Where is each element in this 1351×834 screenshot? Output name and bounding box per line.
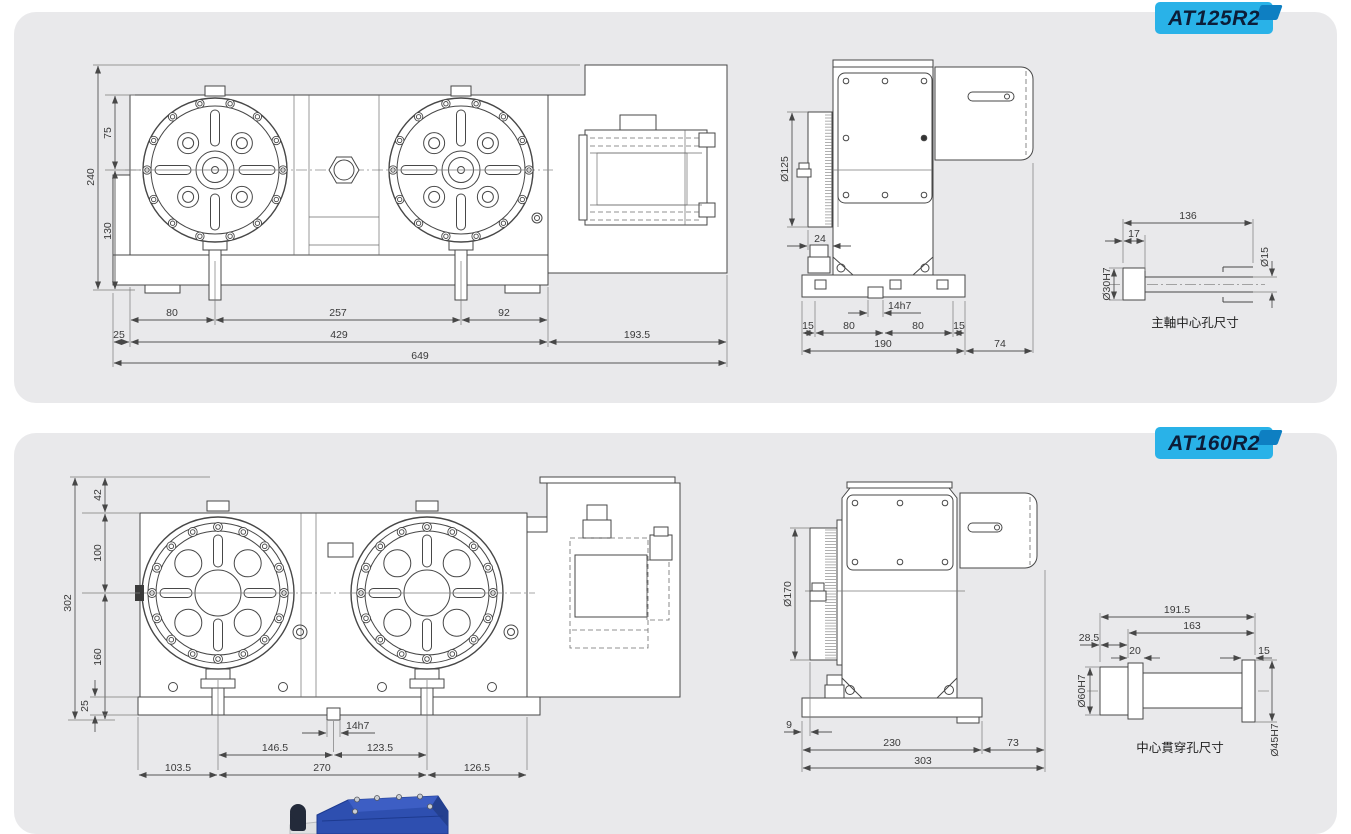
svg-text:42: 42 xyxy=(92,489,104,501)
detail-caption: 中心貫穿孔尺寸 xyxy=(1136,740,1224,755)
end-flange xyxy=(1242,660,1255,722)
svg-text:25: 25 xyxy=(79,700,91,712)
svg-text:429: 429 xyxy=(330,329,348,341)
svg-text:126.5: 126.5 xyxy=(464,762,490,774)
svg-text:73: 73 xyxy=(1007,737,1019,749)
servo-motor xyxy=(579,115,715,225)
shaft-head xyxy=(1123,268,1145,300)
svg-text:20: 20 xyxy=(1129,645,1141,657)
shaft-body xyxy=(1143,673,1242,708)
svg-text:Ø60H7: Ø60H7 xyxy=(1076,674,1088,707)
at160r2-front-view-drawing: 302 42 100 160 25 14h7 146.5 123.5 103.5… xyxy=(60,465,750,800)
at160r2-side-view-drawing: Ø170 9 230 73 303 xyxy=(775,470,1065,800)
dim-height-bottom: 130 xyxy=(102,222,114,240)
svg-text:15: 15 xyxy=(953,320,965,332)
svg-text:Ø15: Ø15 xyxy=(1259,247,1271,267)
svg-text:9: 9 xyxy=(786,719,792,731)
detail-caption: 主軸中心孔尺寸 xyxy=(1151,315,1239,330)
svg-text:103.5: 103.5 xyxy=(165,762,191,774)
svg-text:24: 24 xyxy=(814,233,826,245)
at125r2-bore-detail-drawing: 136 17 Ø30H7 Ø15 主軸中心孔尺寸 xyxy=(1095,205,1305,335)
product-panel-at160r2: AT160R2 xyxy=(14,433,1337,834)
svg-text:92: 92 xyxy=(498,307,510,319)
svg-text:190: 190 xyxy=(874,338,892,350)
svg-text:25: 25 xyxy=(113,329,125,341)
svg-text:123.5: 123.5 xyxy=(367,742,393,754)
svg-text:270: 270 xyxy=(313,762,331,774)
svg-text:80: 80 xyxy=(843,320,855,332)
svg-text:193.5: 193.5 xyxy=(624,329,650,341)
svg-text:136: 136 xyxy=(1179,210,1197,222)
svg-text:302: 302 xyxy=(62,594,74,612)
svg-text:74: 74 xyxy=(994,338,1006,350)
side-motor xyxy=(960,493,1037,568)
svg-text:28.5: 28.5 xyxy=(1079,632,1100,644)
at160r2-bore-detail-drawing: 191.5 163 28.5 20 15 Ø60H7 Ø45H7 中心貫穿孔尺寸 xyxy=(1065,600,1350,770)
catalog-page: { "colors": { "panel_bg": "#e9e9eb", "ba… xyxy=(0,0,1351,834)
base-rail xyxy=(113,255,548,285)
svg-text:80: 80 xyxy=(166,307,178,319)
product-photo xyxy=(260,785,560,834)
base-plate xyxy=(802,698,982,717)
svg-text:230: 230 xyxy=(883,737,901,749)
key-block xyxy=(327,708,340,720)
svg-text:Ø45H7: Ø45H7 xyxy=(1269,723,1281,756)
product-panel-at125r2: AT125R2 xyxy=(14,12,1337,403)
model-badge-at160r2: AT160R2 xyxy=(1155,427,1273,459)
dim-plate-dia: Ø170 xyxy=(782,581,794,607)
svg-text:15: 15 xyxy=(1258,645,1270,657)
cover-plate xyxy=(838,73,932,203)
collar xyxy=(1128,663,1143,719)
dim-key: 14h7 xyxy=(346,720,370,732)
svg-text:100: 100 xyxy=(92,544,104,562)
svg-text:257: 257 xyxy=(329,307,347,319)
dim-plate-dia: Ø125 xyxy=(779,156,791,182)
at125r2-front-view-drawing: 240 75 130 80 257 92 25 429 193.5 649 xyxy=(85,55,760,375)
svg-text:303: 303 xyxy=(914,755,932,767)
svg-text:17: 17 xyxy=(1128,228,1140,240)
side-motor xyxy=(935,67,1033,160)
dim-height-top: 75 xyxy=(102,127,114,139)
svg-text:Ø30H7: Ø30H7 xyxy=(1101,267,1113,300)
svg-text:649: 649 xyxy=(411,350,429,362)
model-badge-at125r2: AT125R2 xyxy=(1155,2,1273,34)
svg-text:163: 163 xyxy=(1183,620,1201,632)
svg-text:80: 80 xyxy=(912,320,924,332)
at125r2-side-view-drawing: Ø125 24 14h7 15 80 80 15 190 74 xyxy=(775,55,1060,375)
dim-height-total: 240 xyxy=(85,168,97,186)
key-block xyxy=(868,287,883,298)
svg-text:15: 15 xyxy=(802,320,814,332)
svg-text:160: 160 xyxy=(92,648,104,666)
shaft-head xyxy=(1100,667,1128,715)
dim-key: 14h7 xyxy=(888,300,912,312)
svg-text:146.5: 146.5 xyxy=(262,742,288,754)
svg-text:191.5: 191.5 xyxy=(1164,604,1190,616)
